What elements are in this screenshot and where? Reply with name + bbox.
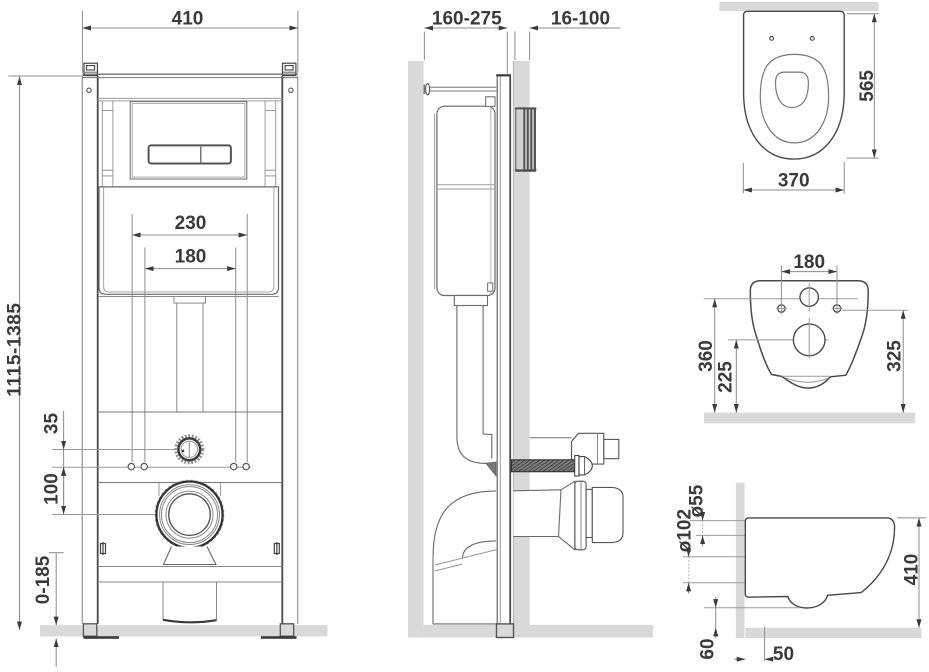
svg-text:370: 370 xyxy=(778,170,810,191)
svg-text:35: 35 xyxy=(41,413,62,435)
svg-text:410: 410 xyxy=(172,9,204,30)
svg-text:16-100: 16-100 xyxy=(551,9,610,30)
svg-text:0-185: 0-185 xyxy=(33,555,54,604)
svg-text:160-275: 160-275 xyxy=(432,9,502,30)
svg-text:180: 180 xyxy=(793,252,825,273)
svg-text:180: 180 xyxy=(175,247,207,268)
svg-text:360: 360 xyxy=(696,340,717,372)
svg-text:225: 225 xyxy=(716,361,737,393)
svg-text:410: 410 xyxy=(902,554,923,586)
svg-text:565: 565 xyxy=(857,70,878,102)
svg-text:230: 230 xyxy=(175,213,207,234)
svg-text:100: 100 xyxy=(41,473,62,505)
svg-text:60: 60 xyxy=(697,638,718,659)
svg-text:50: 50 xyxy=(773,644,794,665)
svg-text:325: 325 xyxy=(884,340,905,372)
svg-text:1115-1385: 1115-1385 xyxy=(5,302,26,396)
svg-text:ø102: ø102 xyxy=(675,509,696,552)
